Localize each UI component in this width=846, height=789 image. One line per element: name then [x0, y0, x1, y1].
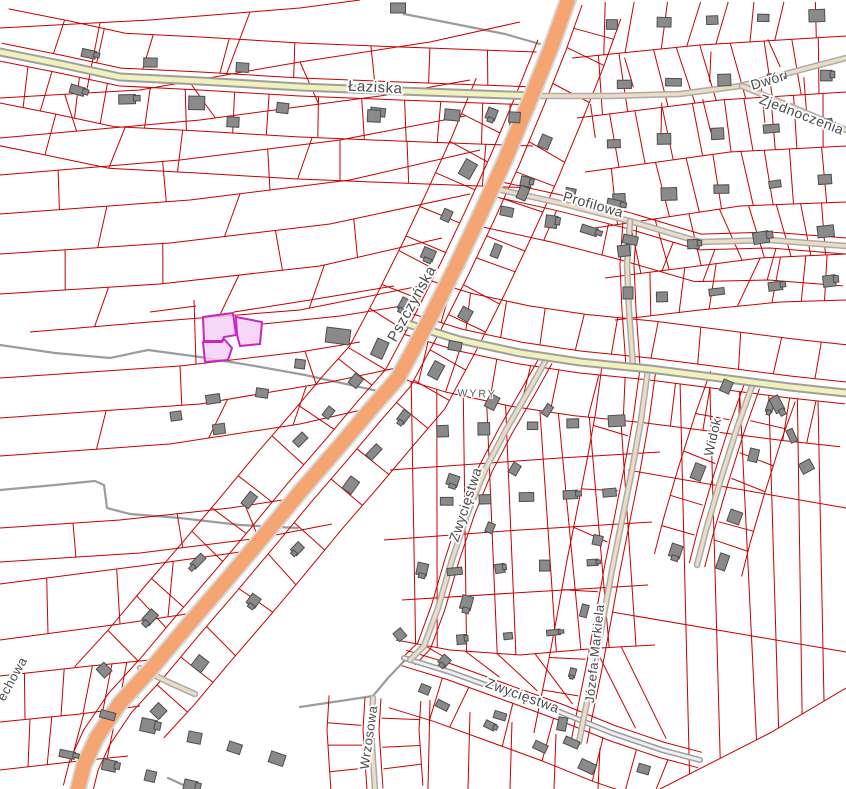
parcel-line	[767, 249, 776, 281]
building	[769, 180, 782, 189]
building	[833, 275, 839, 282]
parcel-line	[698, 327, 701, 364]
parcel-line	[268, 149, 270, 190]
building	[798, 459, 814, 475]
building	[500, 206, 514, 217]
parcel-line	[0, 368, 396, 418]
building	[666, 78, 682, 86]
parcel-line	[612, 612, 846, 652]
building	[519, 492, 534, 501]
parcel-line	[428, 700, 430, 789]
parcel-line	[703, 99, 711, 132]
parcel-line	[575, 314, 584, 350]
building	[479, 495, 491, 505]
building	[194, 782, 201, 789]
building	[714, 185, 729, 194]
street-label-jozefa-markiela: Józefa-Markiela	[582, 603, 607, 704]
building	[72, 753, 79, 758]
building	[623, 287, 633, 299]
parcel-line	[24, 673, 25, 719]
parcel-line	[212, 508, 247, 534]
parcel-line	[309, 265, 324, 308]
parcel-line	[482, 144, 486, 186]
building	[418, 684, 431, 696]
parcel-line	[382, 746, 420, 748]
building	[427, 361, 444, 381]
street-label-dwor: Dwór	[749, 67, 787, 92]
building	[458, 159, 477, 180]
cadastral-map[interactable]: Łaziska Dwór Zjednoczenia Profilowa Pszc…	[0, 0, 846, 789]
parcel-line	[662, 242, 674, 272]
parcel-line	[741, 151, 753, 205]
building	[529, 179, 534, 185]
building	[391, 3, 406, 13]
building	[144, 58, 158, 67]
road-zwyciestwa	[410, 360, 546, 660]
building	[268, 751, 286, 767]
building	[170, 411, 182, 421]
parcel-line	[540, 411, 556, 652]
building	[293, 432, 308, 447]
building	[697, 240, 702, 246]
parcel-line	[450, 687, 469, 727]
selected-parcel[interactable]	[236, 317, 262, 346]
parcel-line	[266, 94, 269, 135]
street-label-echowa: echowa	[0, 654, 30, 703]
parcel-line	[650, 272, 651, 316]
parcel-line	[194, 300, 196, 364]
building	[575, 491, 581, 496]
parcel-line	[411, 382, 415, 644]
parcel-line	[744, 99, 753, 151]
parcel-line	[679, 268, 685, 313]
building	[82, 89, 89, 96]
building	[325, 327, 351, 345]
building	[706, 16, 718, 25]
parcel-line	[108, 630, 138, 661]
building	[817, 225, 835, 238]
parcel-line	[207, 627, 236, 656]
building	[818, 174, 832, 184]
parcel-line	[225, 194, 241, 237]
parcel-line	[382, 718, 420, 720]
parcel-line	[602, 224, 609, 255]
parcel-line	[592, 738, 603, 781]
building	[766, 231, 773, 239]
building	[440, 497, 453, 505]
parcel-line	[0, 194, 470, 254]
building	[503, 632, 512, 640]
parcel-line	[220, 39, 229, 73]
parcel-line	[815, 342, 821, 379]
building	[539, 560, 549, 571]
parcel-line	[420, 207, 460, 223]
building	[154, 721, 162, 730]
parcel-line	[47, 717, 52, 765]
building	[763, 124, 779, 133]
parcel-line	[628, 470, 846, 508]
parcel-line	[150, 306, 196, 312]
parcel-line	[773, 338, 781, 374]
parcel-line	[652, 760, 668, 789]
building	[189, 96, 205, 110]
parcel-line	[83, 666, 92, 714]
parcel-line	[75, 78, 477, 667]
parcel-line	[75, 77, 80, 118]
building	[133, 95, 140, 101]
parcel-line	[769, 395, 779, 728]
parcel-line	[540, 308, 545, 345]
building	[114, 762, 121, 770]
parcel-line	[429, 48, 430, 83]
building	[144, 770, 157, 783]
parcel-line	[145, 88, 151, 129]
building	[448, 340, 462, 351]
parcel-line	[293, 386, 306, 425]
parcel-line	[692, 104, 702, 156]
building	[527, 422, 538, 430]
parcel-line	[662, 526, 695, 535]
parcel-line	[61, 669, 64, 716]
parcel-line	[117, 569, 120, 624]
parcel-line	[713, 154, 722, 208]
parcel-line	[414, 380, 450, 400]
building	[592, 534, 603, 546]
parcel-line	[623, 378, 625, 421]
building	[617, 80, 631, 88]
parcel-line	[168, 561, 173, 617]
parcel-line	[742, 402, 796, 577]
parcel-line	[476, 258, 515, 272]
building	[205, 394, 220, 405]
building	[93, 52, 100, 58]
building	[727, 509, 743, 525]
building	[227, 117, 240, 128]
parcel-line	[750, 421, 785, 429]
parcel-line	[45, 114, 56, 155]
parcel-line	[0, 0, 360, 28]
building	[440, 208, 453, 222]
parcel-line	[818, 401, 824, 701]
parcel-line	[635, 111, 645, 164]
gray-road	[300, 657, 408, 707]
parcel-line	[100, 83, 107, 123]
parcel-line	[670, 383, 675, 426]
parcel-line	[28, 719, 30, 767]
parcel-line	[463, 285, 499, 304]
parcel-line	[298, 138, 313, 180]
parcel-line	[109, 127, 126, 168]
parcel-line	[732, 478, 766, 491]
building	[490, 243, 502, 258]
parcel-line	[558, 413, 581, 649]
parcel-line	[501, 301, 507, 338]
parcel-line	[562, 590, 598, 592]
parcel-line	[654, 371, 710, 554]
building	[294, 359, 305, 369]
parcel-line	[764, 150, 773, 205]
parcel-line	[724, 100, 731, 152]
parcel-lines-layer	[0, 0, 846, 789]
parcel-line	[687, 2, 701, 46]
parcel-line	[542, 718, 554, 761]
building	[555, 217, 561, 225]
parcel-line	[801, 204, 811, 256]
building	[758, 14, 770, 22]
parcel-line	[0, 408, 370, 456]
building	[608, 415, 625, 427]
building	[212, 423, 225, 435]
parcel-line	[327, 723, 361, 726]
parcel-line	[437, 102, 441, 143]
building	[508, 462, 521, 476]
parcel-line	[510, 722, 512, 789]
parcel-line	[670, 495, 703, 505]
building	[493, 710, 507, 720]
parcel-line	[354, 219, 358, 258]
parcel-line	[47, 578, 48, 634]
street-label-profilowa: Profilowa	[561, 188, 625, 220]
locality-label-wyry: WYRY	[457, 387, 497, 400]
road-zwyciestwa-casing	[410, 360, 546, 660]
roads-layer	[0, 0, 846, 789]
parcel-line	[98, 206, 107, 248]
building	[462, 607, 470, 614]
building	[533, 740, 549, 753]
building	[606, 20, 617, 30]
road-dwor-casing	[535, 58, 846, 96]
building	[766, 410, 771, 416]
parcel-line	[9, 9, 537, 52]
parcel-line	[40, 72, 52, 111]
building	[656, 292, 667, 302]
parcel-line	[384, 764, 422, 769]
parcel-line	[739, 332, 741, 369]
building	[393, 628, 407, 642]
parcel-line	[709, 264, 716, 309]
highlighted-parcels[interactable]	[203, 313, 262, 362]
parcel-line	[465, 651, 499, 677]
parcel-line	[549, 658, 585, 660]
building	[191, 655, 209, 673]
building	[236, 63, 249, 73]
parcel-line	[0, 524, 332, 562]
parcel-line	[621, 647, 666, 739]
building	[661, 187, 677, 200]
street-label-wrzosowa: Wrzosowa	[357, 704, 381, 770]
parcel-line	[58, 170, 59, 209]
parcel-line	[305, 351, 316, 384]
building	[444, 109, 460, 121]
building	[371, 338, 389, 359]
parcel-line	[615, 300, 846, 320]
parcel-line	[390, 452, 660, 470]
parcel-line	[625, 2, 634, 53]
parcel-line	[180, 366, 182, 405]
building	[558, 630, 564, 634]
building	[569, 675, 573, 680]
parcel-line	[680, 384, 689, 774]
parcel-line	[276, 231, 283, 271]
building	[435, 699, 450, 711]
parcel-line	[430, 678, 443, 720]
parcel-line	[318, 97, 319, 138]
parcel-line	[185, 89, 186, 130]
parcel-line	[407, 141, 409, 183]
parcel-line	[651, 322, 658, 358]
building	[596, 560, 601, 564]
building	[437, 425, 449, 437]
parcel-line	[73, 523, 76, 557]
parcel-line	[163, 162, 167, 202]
building	[718, 74, 731, 86]
building	[342, 476, 360, 494]
building	[690, 463, 706, 482]
parcel-line	[178, 130, 183, 172]
building	[809, 9, 825, 22]
parcel-line	[574, 28, 614, 39]
parcel-line	[750, 2, 754, 42]
building	[502, 564, 507, 570]
parcel-line	[740, 392, 757, 740]
parcel-line	[737, 258, 760, 306]
building	[617, 244, 630, 257]
road-secondary-casing	[408, 324, 846, 393]
parcel-line	[263, 306, 402, 324]
map-viewport[interactable]: Łaziska Dwór Zjednoczenia Profilowa Pszc…	[0, 0, 846, 789]
building	[780, 281, 786, 287]
parcel-line	[327, 695, 331, 789]
building	[464, 635, 468, 641]
parcel-line	[710, 52, 711, 82]
parcel-line	[23, 67, 28, 108]
building	[255, 388, 268, 399]
parcel-line	[554, 734, 556, 789]
parcel-line	[714, 540, 748, 552]
building	[367, 110, 381, 123]
parcel-line	[686, 158, 699, 212]
parcel-line	[595, 648, 635, 728]
building	[711, 128, 724, 140]
street-label-laziska: Łaziska	[348, 78, 403, 98]
building	[447, 567, 463, 576]
parcel-line	[588, 375, 599, 417]
selected-parcel[interactable]	[203, 339, 232, 362]
gray-road	[404, 14, 540, 44]
parcel-line	[591, 104, 596, 138]
parcel-line	[604, 2, 605, 55]
parcel-line	[405, 100, 407, 141]
building	[150, 703, 167, 720]
building	[637, 763, 651, 775]
parcel-line	[0, 238, 442, 294]
selected-parcel[interactable]	[203, 313, 236, 341]
parcel-line	[63, 40, 538, 786]
building	[603, 488, 617, 497]
parcel-line	[801, 256, 806, 302]
building	[830, 71, 835, 77]
parcel-line	[797, 399, 802, 714]
parcel-line	[152, 579, 184, 608]
parcel-line	[719, 209, 742, 260]
parcel-line	[362, 99, 365, 140]
street-label-zwyciestwa-bottom: Zwycięstwa	[484, 675, 562, 716]
building	[709, 287, 725, 296]
parcel-line	[268, 554, 296, 585]
building	[557, 717, 568, 732]
building	[227, 741, 243, 755]
building	[322, 406, 335, 419]
building	[366, 444, 382, 461]
parcel-line	[775, 2, 784, 40]
building	[657, 133, 671, 144]
parcel-line	[419, 701, 423, 786]
building	[657, 17, 671, 27]
parcel-line	[768, 39, 781, 67]
building	[579, 604, 589, 618]
parcel-line	[789, 149, 793, 204]
parcel-line	[396, 640, 655, 655]
parcel-line	[97, 411, 107, 450]
parcel-line	[468, 712, 470, 789]
building	[578, 759, 597, 775]
parcel-line	[294, 43, 295, 78]
parcel-line	[95, 287, 109, 326]
parcel-line	[611, 318, 617, 355]
building	[716, 553, 730, 571]
parcel-line	[807, 401, 816, 443]
building	[478, 423, 490, 436]
parcel-line	[625, 750, 637, 789]
building	[418, 573, 425, 579]
building	[607, 139, 620, 147]
building	[276, 102, 289, 113]
building	[567, 419, 579, 428]
building	[187, 731, 202, 744]
parcel-line	[219, 275, 239, 316]
parcel-line	[402, 666, 698, 768]
building	[509, 112, 521, 123]
